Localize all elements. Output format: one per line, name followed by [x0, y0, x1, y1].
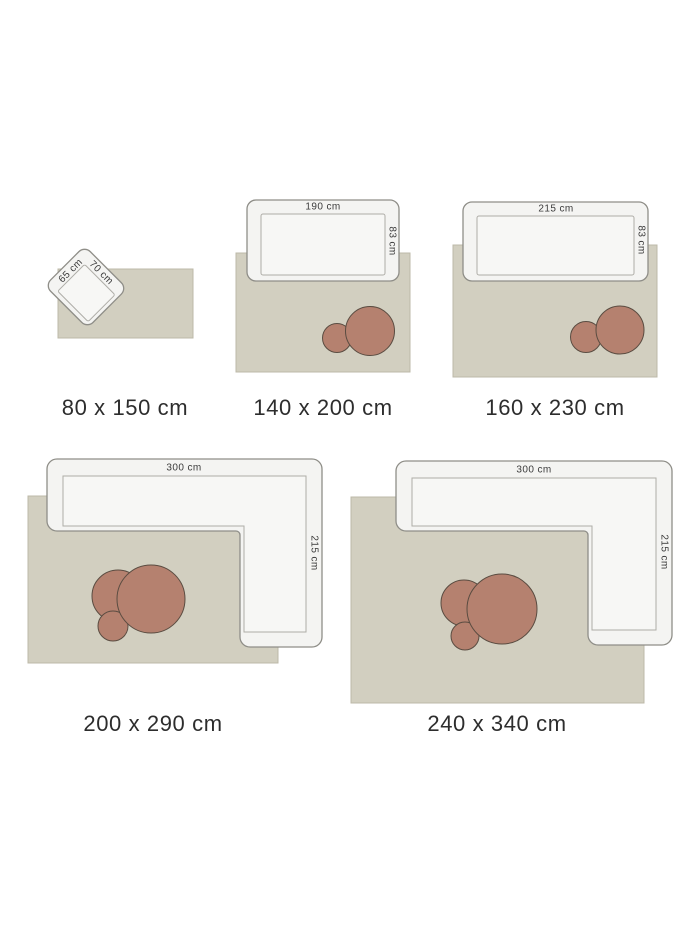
dimension-label: 300 cm: [166, 463, 201, 474]
dimension-label: 215 cm: [659, 534, 670, 569]
size-option-140x200: 190 cm83 cm: [236, 200, 410, 372]
size-option-200x290: 300 cm215 cm: [28, 459, 322, 663]
rug-size-guide: 70 cm65 cm190 cm83 cm215 cm83 cm300 cm21…: [0, 0, 700, 933]
dimension-label: 300 cm: [516, 465, 551, 476]
size-option-80x150: 70 cm65 cm: [45, 246, 193, 338]
dimension-label: 83 cm: [387, 226, 398, 255]
sofa-seat: [261, 214, 385, 275]
size-option-240x340: 300 cm215 cm: [351, 461, 672, 703]
size-caption-140x200: 140 x 200 cm: [203, 395, 443, 421]
coffee-table: [346, 307, 395, 356]
coffee-table: [117, 565, 185, 633]
size-caption-200x290: 200 x 290 cm: [33, 711, 273, 737]
dimension-label: 215 cm: [538, 204, 573, 215]
size-caption-240x340: 240 x 340 cm: [377, 711, 617, 737]
dimension-label: 83 cm: [636, 225, 647, 254]
dimension-label: 215 cm: [309, 535, 320, 570]
coffee-table: [467, 574, 537, 644]
size-option-160x230: 215 cm83 cm: [453, 202, 657, 377]
sofa-seat: [477, 216, 634, 275]
size-guide-diagram: 70 cm65 cm190 cm83 cm215 cm83 cm300 cm21…: [0, 0, 700, 933]
coffee-table: [596, 306, 644, 354]
dimension-label: 190 cm: [305, 202, 340, 213]
size-caption-160x230: 160 x 230 cm: [435, 395, 675, 421]
